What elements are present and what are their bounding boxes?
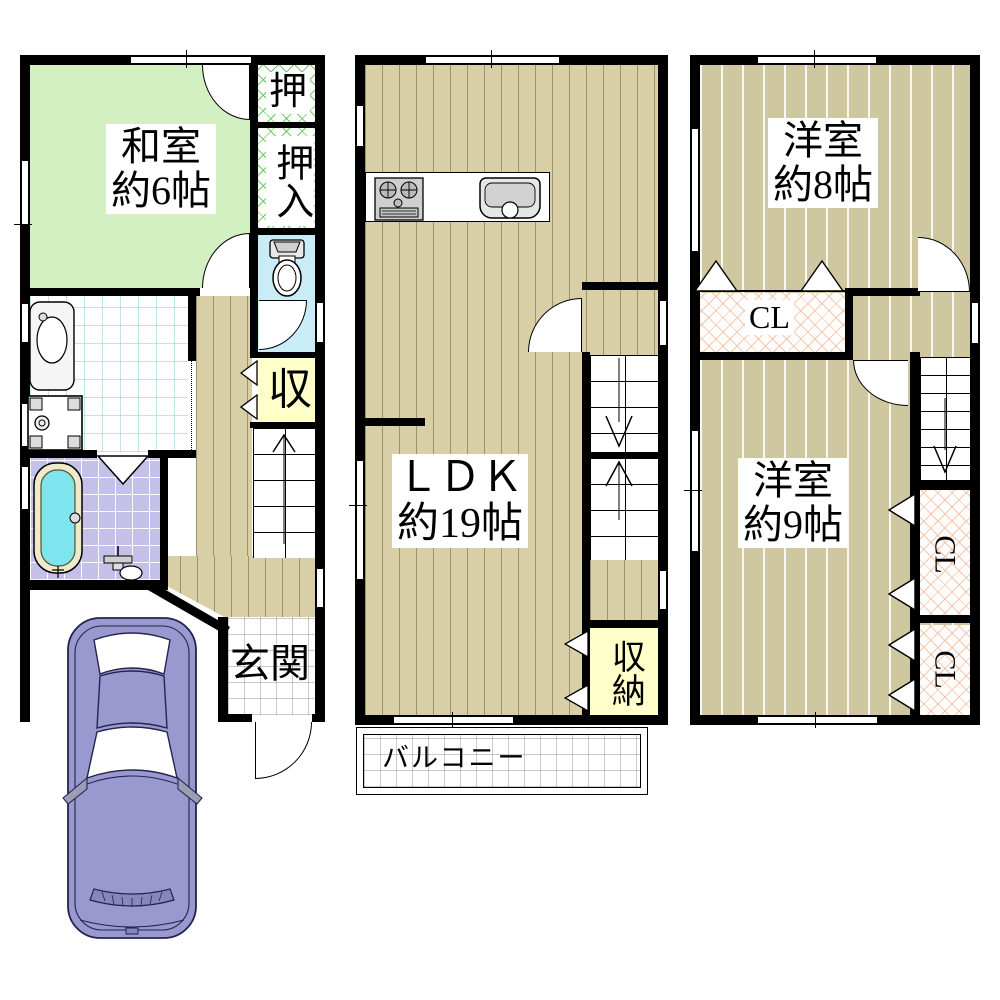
closet-right-lower-label: CL [929, 647, 962, 693]
wall [312, 714, 325, 722]
window [425, 56, 560, 64]
stair-divider [590, 452, 658, 458]
folding-door-marker-icon [888, 577, 916, 611]
window [356, 460, 364, 580]
storage-label-2f: 収納 [606, 634, 643, 712]
wall [160, 458, 168, 590]
bath-stool-icon [118, 564, 144, 582]
folding-door-marker-icon [888, 493, 916, 527]
wall [250, 65, 258, 358]
folding-door-marker-icon [888, 628, 916, 662]
japanese-room-label: 和室 約6帖 [106, 124, 216, 214]
wall [845, 288, 853, 360]
wall [258, 228, 315, 235]
stove-icon [374, 177, 424, 221]
kitchen-sink-icon [478, 177, 542, 221]
hallway-floor [196, 296, 252, 558]
closet-right-upper-label: CL [929, 532, 962, 578]
stairs-down-arrow-icon [601, 358, 637, 450]
balcony-label: バルコニー [382, 744, 526, 774]
entrance-door-arc [255, 722, 312, 779]
ldk-label: ＬＤＫ 約19帖 [392, 454, 528, 548]
wall [582, 282, 658, 290]
storage-label-1f: 収 [268, 366, 312, 414]
window-tick [14, 224, 32, 225]
closet-upper-label: 押 [266, 72, 310, 114]
folding-door-marker-icon [97, 455, 149, 485]
window-tick [684, 490, 702, 491]
window [971, 302, 979, 344]
wall [188, 296, 196, 361]
toilet-icon [266, 238, 308, 300]
floor-plan: 和室 約6帖 押 押入 収 玄関 [0, 0, 1000, 1000]
window-tick [186, 50, 187, 68]
window [659, 300, 667, 346]
wall [258, 122, 315, 128]
stairs-up-arrow-icon [601, 460, 637, 524]
wall-stub [355, 418, 425, 426]
wall [20, 288, 200, 296]
folding-door-marker-icon [694, 260, 738, 292]
wall [20, 580, 168, 590]
room-boundary-dotted [191, 361, 192, 450]
window [691, 430, 699, 552]
wall [148, 450, 196, 458]
folding-door-marker-icon [800, 260, 844, 292]
wall [845, 288, 920, 296]
entrance-label: 玄関 [230, 642, 310, 686]
window [757, 56, 877, 64]
closet-top-label: CL [745, 300, 794, 335]
washer-pan-icon [26, 394, 84, 452]
wall [582, 620, 658, 628]
folding-door-marker-icon [240, 394, 258, 420]
window [659, 570, 667, 610]
western-room9-label: 洋室 約9帖 [738, 458, 848, 548]
folding-door-marker-icon [888, 678, 916, 712]
wall [910, 615, 980, 623]
window-tick [452, 712, 453, 728]
western-room8-label: 洋室 約8帖 [768, 118, 878, 208]
wall [582, 352, 590, 628]
stairs-up-arrow-icon [270, 432, 298, 550]
stairs-down-arrow-icon [931, 398, 959, 476]
wall [910, 352, 920, 482]
window [757, 716, 878, 724]
window [356, 105, 364, 147]
window-tick [814, 50, 815, 68]
wall [218, 714, 252, 722]
window-tick [491, 50, 492, 68]
vanity-sink-icon [28, 300, 76, 392]
window [21, 160, 29, 226]
wall [690, 352, 853, 360]
wall [315, 57, 325, 720]
window [316, 568, 324, 608]
wall [355, 65, 365, 725]
window [130, 56, 252, 64]
folding-door-marker-icon [564, 684, 589, 712]
window-tick [815, 712, 816, 728]
sliding-door [393, 716, 514, 724]
wall [658, 65, 668, 725]
wall [250, 422, 315, 428]
wall [970, 65, 980, 725]
window [316, 302, 324, 343]
folding-door-marker-icon [240, 360, 258, 386]
wall [250, 352, 315, 358]
window-tick [349, 505, 367, 506]
folding-door-marker-icon [564, 630, 589, 658]
stair-landing-2f [590, 560, 658, 620]
wall [910, 480, 980, 490]
window [691, 128, 699, 252]
bathtub-icon [33, 462, 83, 580]
closet-lower-label: 押入 [266, 136, 314, 226]
window [21, 466, 29, 510]
car-icon [60, 612, 205, 947]
